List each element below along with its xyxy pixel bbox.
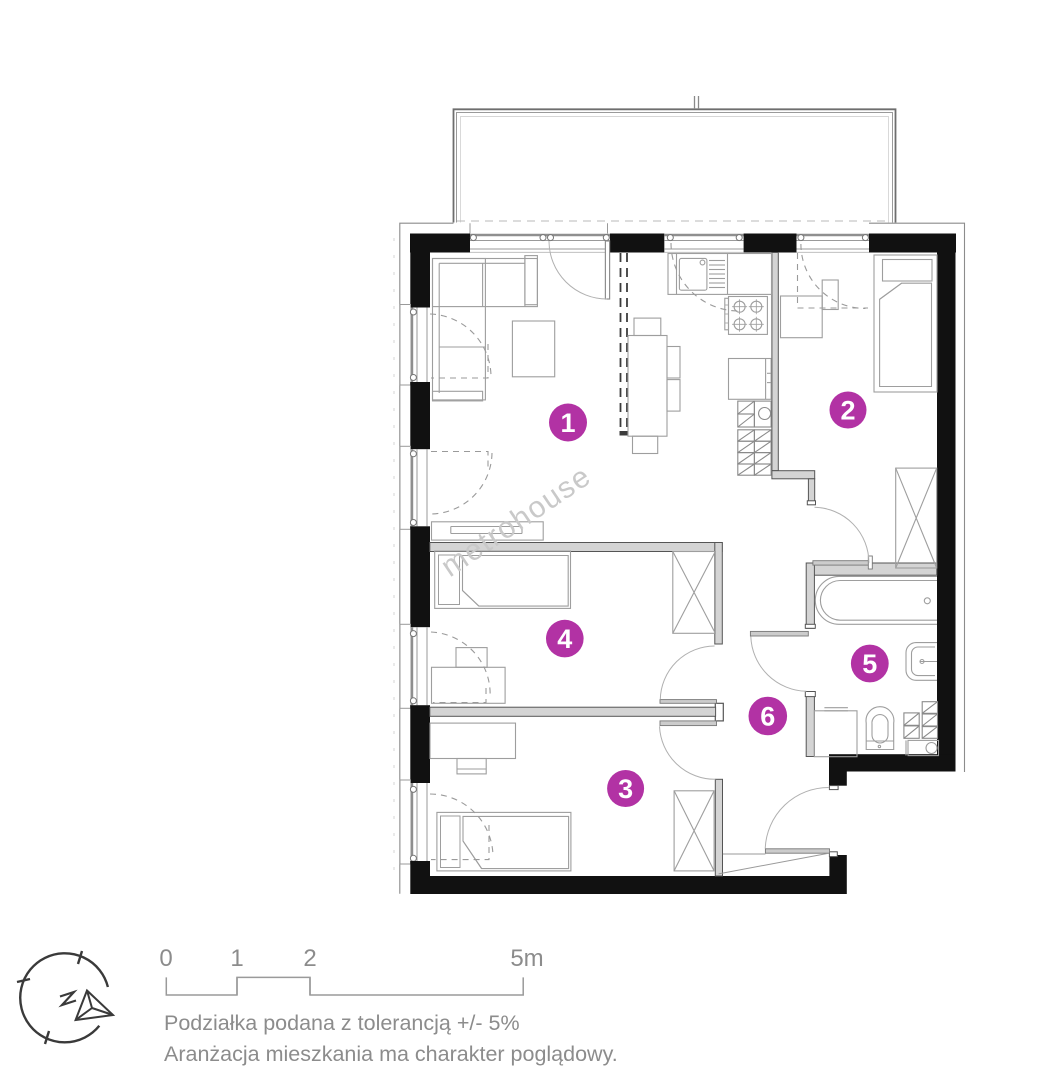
svg-text:2: 2 [840, 396, 855, 426]
svg-text:1: 1 [560, 408, 575, 438]
svg-text:Aranżacja mieszkania ma charak: Aranżacja mieszkania ma charakter pogląd… [164, 1042, 618, 1066]
svg-text:5: 5 [862, 649, 877, 679]
svg-text:1: 1 [230, 945, 243, 972]
svg-text:2: 2 [303, 945, 316, 972]
svg-text:6: 6 [760, 702, 775, 732]
svg-text:4: 4 [557, 624, 572, 654]
svg-text:0: 0 [159, 945, 172, 972]
svg-text:5m: 5m [510, 945, 543, 972]
svg-text:3: 3 [618, 774, 633, 804]
svg-text:Podziałka podana z tolerancją: Podziałka podana z tolerancją +/- 5% [164, 1011, 520, 1035]
